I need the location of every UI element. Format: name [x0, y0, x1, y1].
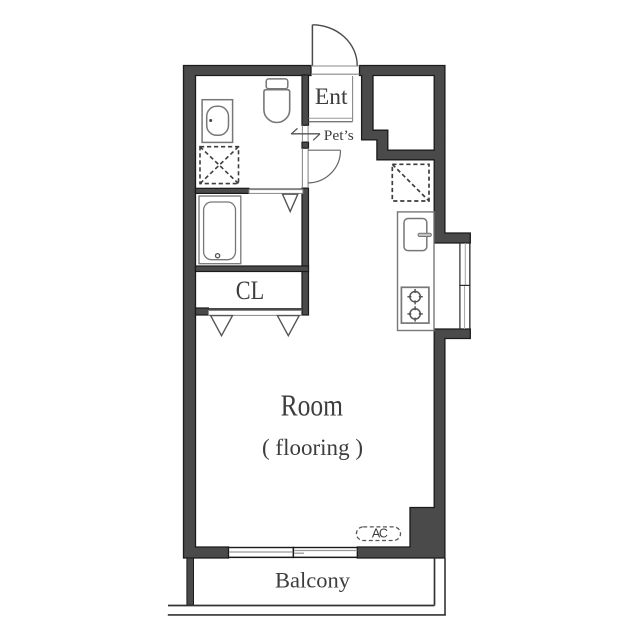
- svg-text:Pet’s: Pet’s: [324, 128, 354, 144]
- svg-text:Room: Room: [281, 387, 343, 422]
- svg-text:CL: CL: [236, 275, 264, 305]
- svg-text:( flooring ): ( flooring ): [262, 435, 363, 460]
- svg-text:Ent: Ent: [315, 84, 348, 110]
- svg-text:AC: AC: [372, 526, 388, 540]
- svg-text:Balcony: Balcony: [275, 567, 351, 592]
